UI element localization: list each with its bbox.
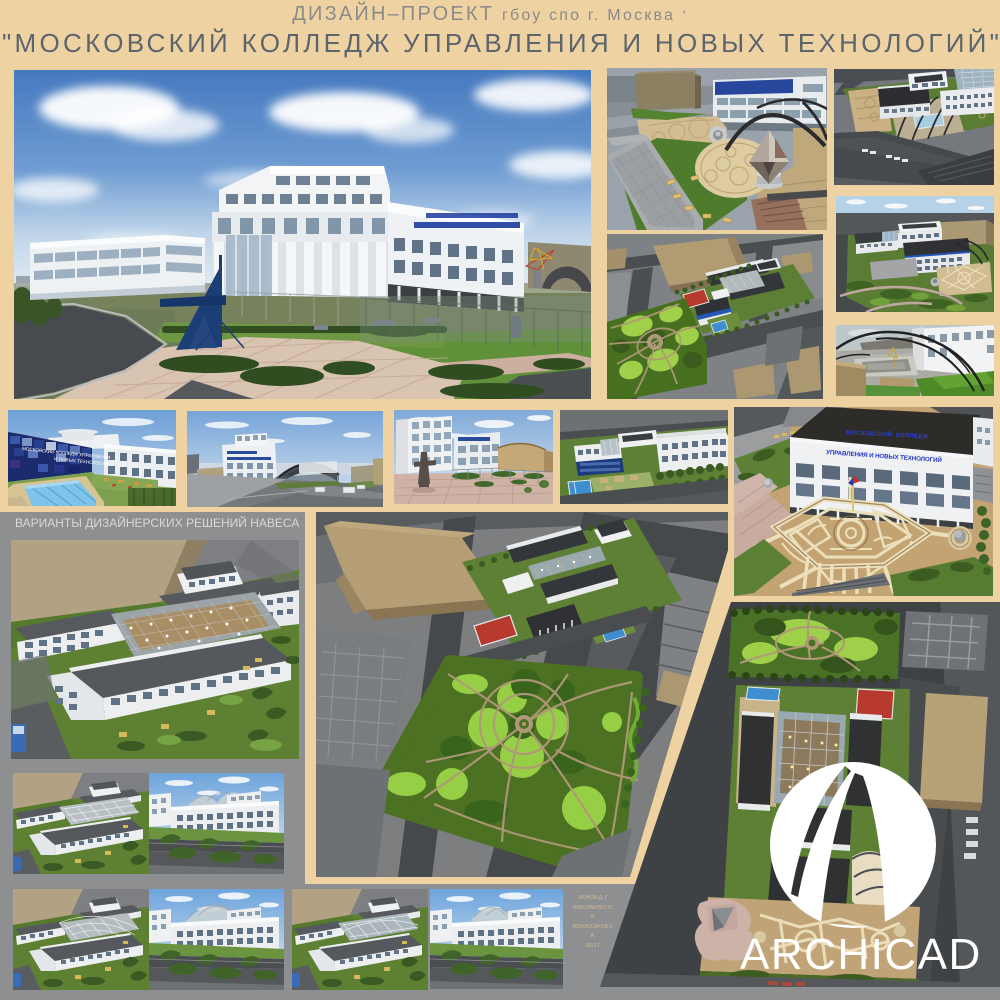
svg-text:ARCHICAD: ARCHICAD [740, 930, 982, 979]
